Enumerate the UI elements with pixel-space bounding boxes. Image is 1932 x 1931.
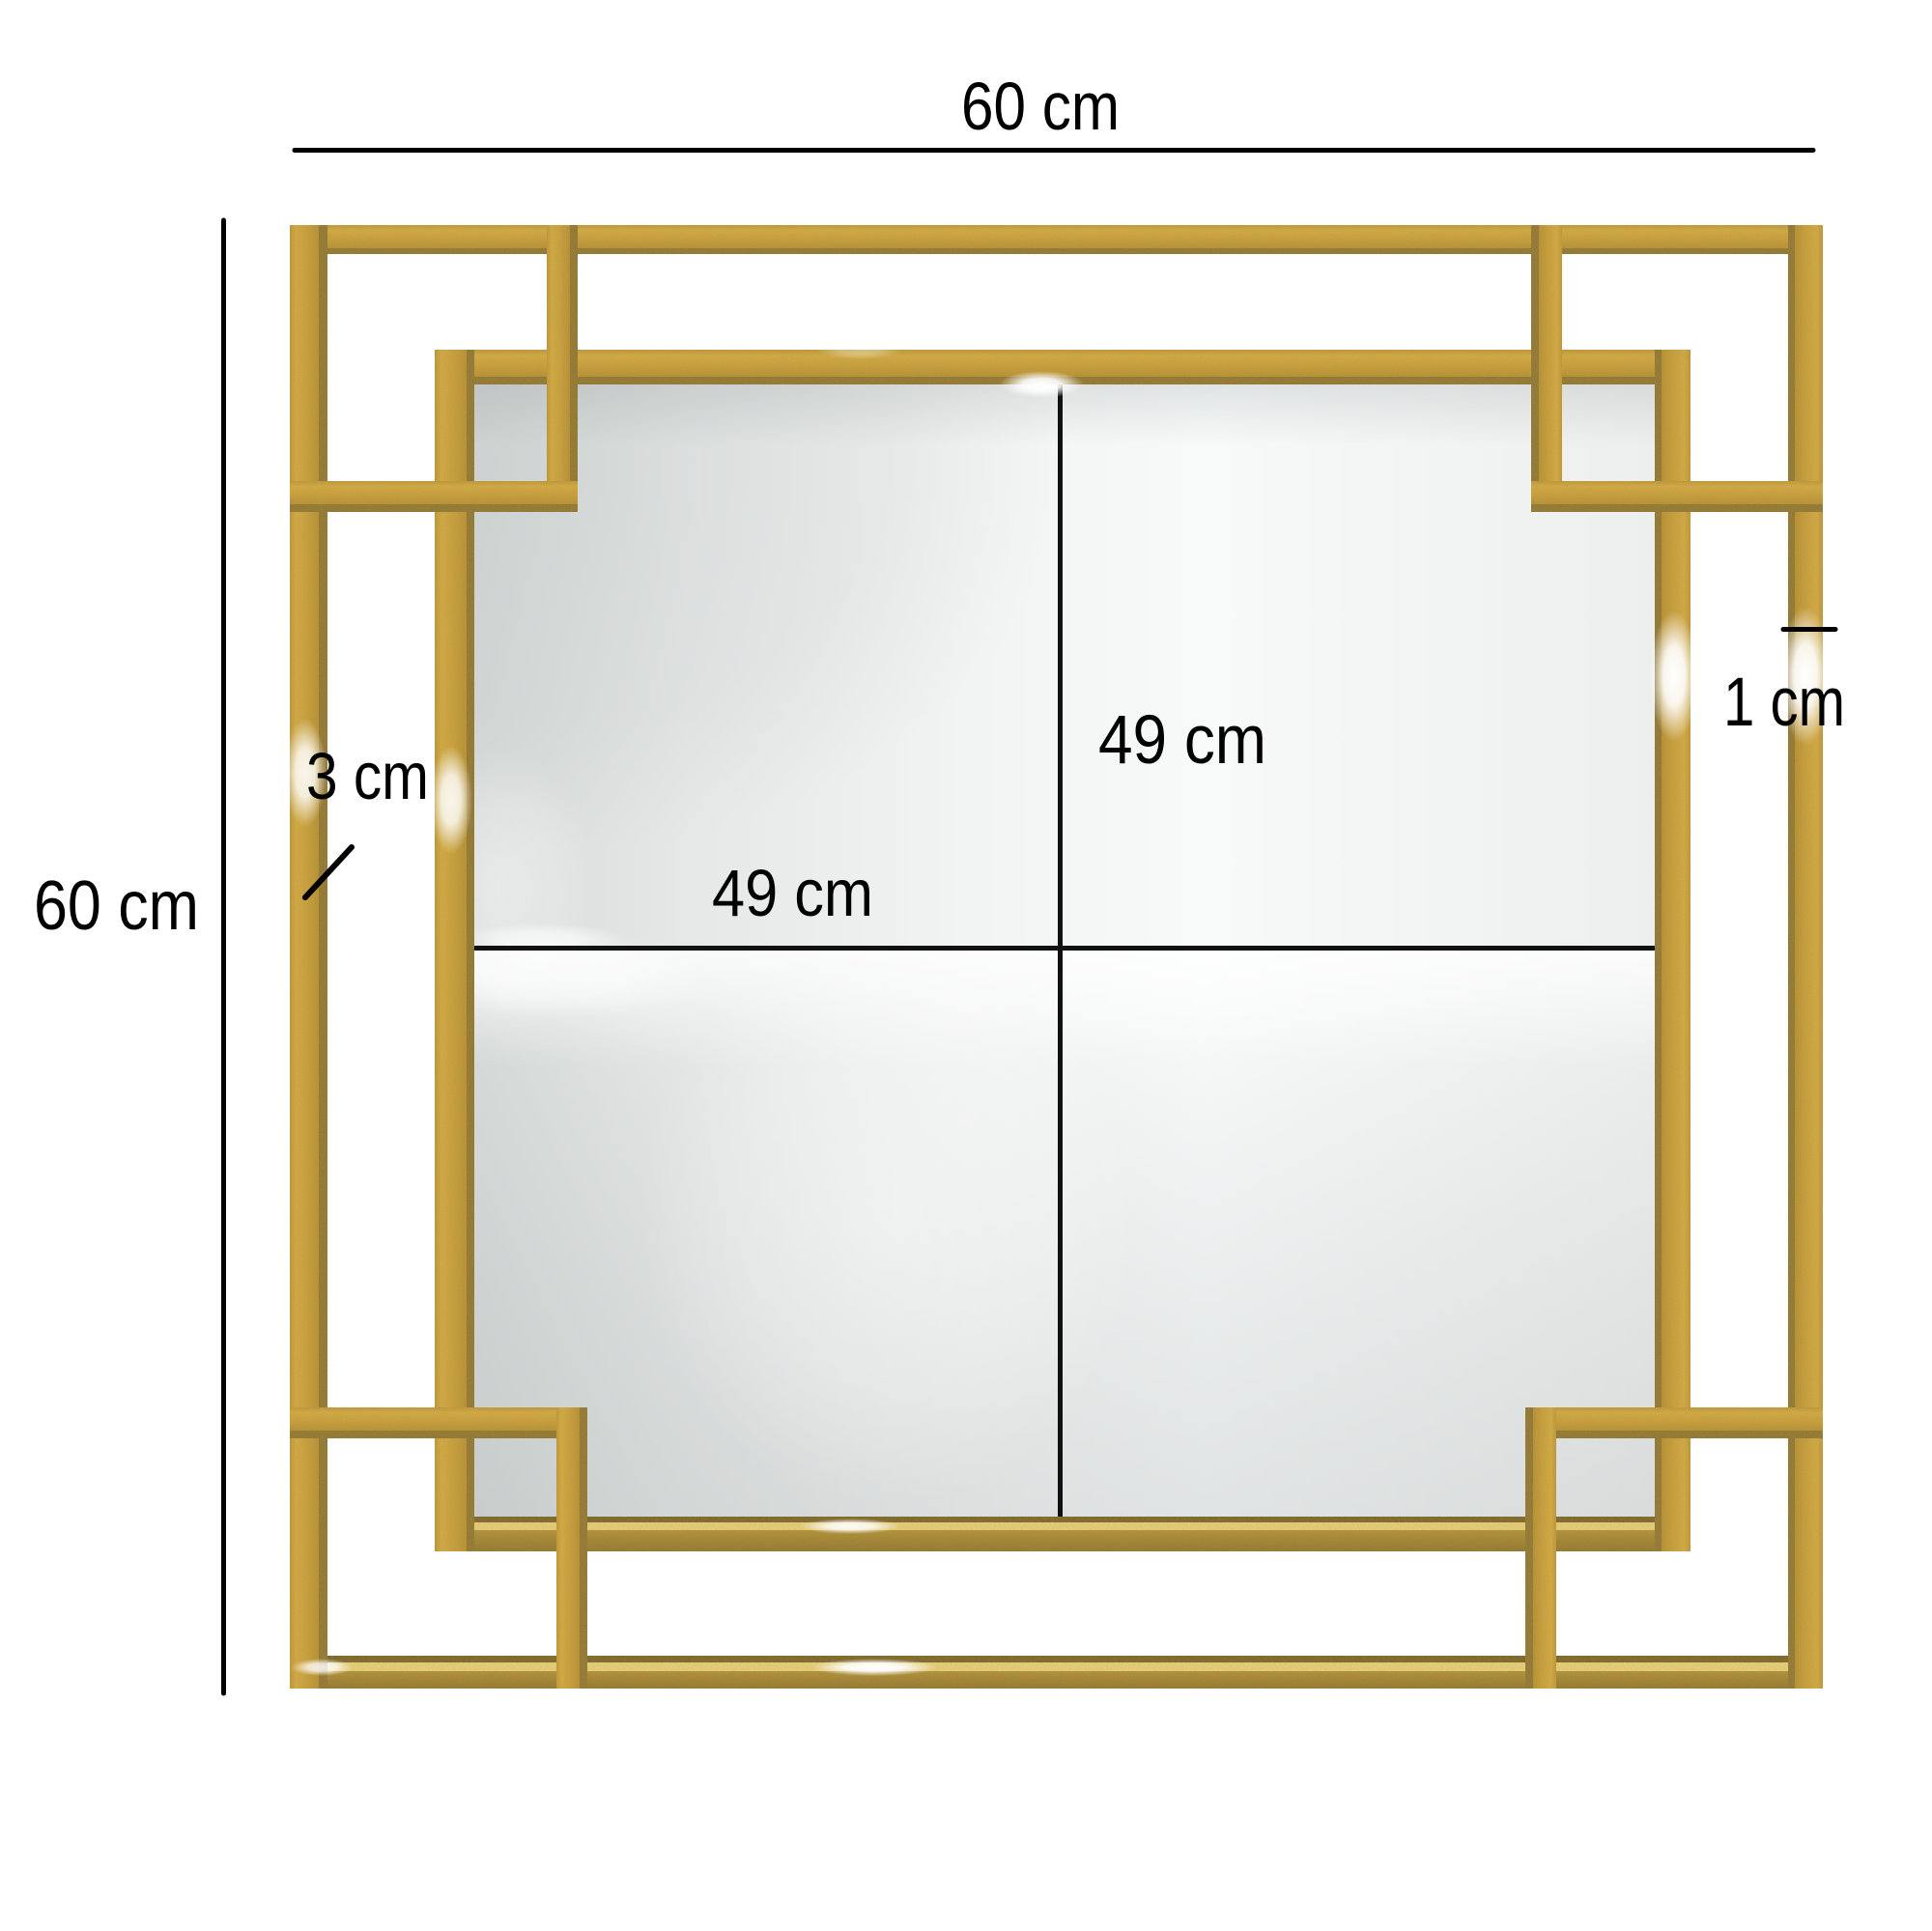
svg-text:3 cm: 3 cm xyxy=(306,739,429,813)
svg-text:1 cm: 1 cm xyxy=(1723,665,1845,741)
svg-text:60 cm: 60 cm xyxy=(961,69,1120,144)
svg-text:49 cm: 49 cm xyxy=(712,856,873,930)
svg-text:60 cm: 60 cm xyxy=(34,867,199,945)
svg-text:49 cm: 49 cm xyxy=(1098,702,1266,779)
